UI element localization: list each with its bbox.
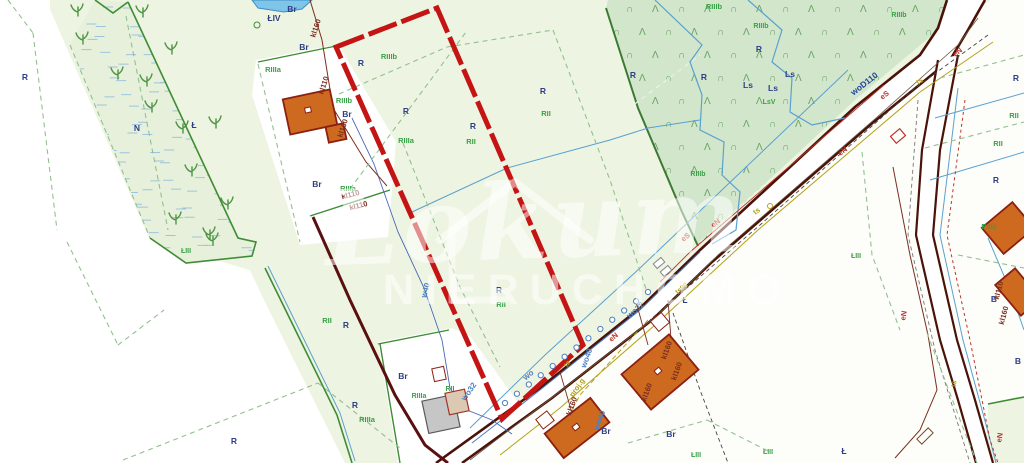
- tree-symbol: Λ: [912, 4, 919, 15]
- tree-symbol: ∩: [730, 142, 737, 153]
- map-label-r: R: [993, 175, 999, 185]
- tree-symbol: ∩: [730, 188, 737, 199]
- tree-symbol: ∩: [782, 142, 789, 153]
- tree-symbol: Λ: [704, 96, 711, 107]
- tree-symbol: Λ: [795, 119, 802, 130]
- tree-symbol: ∩: [678, 142, 685, 153]
- tree-symbol: Λ: [704, 188, 711, 199]
- tree-symbol: ∩: [717, 165, 724, 176]
- map-label-r: R: [1013, 73, 1019, 83]
- map-label-r: R: [470, 121, 476, 131]
- map-label-rii: RII: [993, 139, 1003, 148]
- map-label-riiib: RIIIb: [381, 52, 398, 61]
- tree-symbol: ∩: [730, 4, 737, 15]
- map-label-riiia: RIIIa: [412, 393, 427, 400]
- map-label-riiib: RIIIb: [981, 224, 996, 231]
- map-label-r: R: [22, 72, 28, 82]
- map-label-br: Br: [299, 42, 309, 52]
- map-label-riiia: RIIIa: [359, 415, 376, 424]
- wo-pipe-circle: [526, 382, 531, 387]
- tree-symbol: ∩: [678, 188, 685, 199]
- tree-symbol: ∩: [717, 27, 724, 38]
- tree-symbol: ∩: [834, 50, 841, 61]
- tree-symbol: ∩: [782, 50, 789, 61]
- map-label-ts: ts: [951, 380, 959, 387]
- tree-symbol: Λ: [639, 73, 646, 84]
- map-label-rii: RII: [496, 300, 506, 309]
- map-label-rii: RII: [446, 386, 455, 393]
- map-label-ł: Ł: [682, 295, 687, 305]
- map-label-rii: RII: [1009, 111, 1019, 120]
- map-label-r: R: [630, 70, 636, 80]
- wo-pipe-circle: [562, 354, 567, 359]
- tree-symbol: Λ: [808, 4, 815, 15]
- tree-symbol: Λ: [704, 142, 711, 153]
- wo-pipe-circle: [550, 363, 555, 368]
- map-label-br: Br: [312, 179, 322, 189]
- building-dot: [305, 107, 312, 113]
- tree-symbol: Λ: [795, 27, 802, 38]
- map-label-br: Br: [666, 429, 676, 439]
- map-label-r: R: [756, 44, 762, 54]
- tree-symbol: ∩: [834, 96, 841, 107]
- tree-symbol: Λ: [808, 50, 815, 61]
- map-label-łiii: ŁIII: [851, 253, 861, 260]
- tree-symbol: ∩: [730, 50, 737, 61]
- map-label-br: Br: [601, 426, 611, 436]
- map-label-lsv: LsV: [763, 99, 776, 106]
- tree-symbol: Λ: [652, 4, 659, 15]
- map-label-r: R: [352, 400, 358, 410]
- map-label-riiia: RIIIa: [265, 65, 282, 74]
- tree-symbol: Λ: [691, 27, 698, 38]
- shed-symbol: [432, 366, 446, 381]
- map-label-r: R: [343, 320, 349, 330]
- tree-symbol: Λ: [847, 27, 854, 38]
- wo-pipe-circle: [645, 289, 650, 294]
- map-label-br: Br: [398, 371, 408, 381]
- tree-symbol: ∩: [769, 27, 776, 38]
- cadastral-map-canvas[interactable]: Λ∩Λ∩Λ∩Λ∩Λ∩Λ∩Λ∩Λ∩Λ∩Λ∩Λ∩Λ∩Λ∩Λ∩Λ∩Λ∩Λ∩Λ∩Λ∩Λ∩…: [0, 0, 1024, 463]
- map-label-ł: Ł: [841, 446, 846, 456]
- wo-pipe-circle: [514, 391, 519, 396]
- map-label-ł: Ł: [191, 120, 196, 130]
- tree-symbol: ∩: [873, 27, 880, 38]
- tree-symbol: ∩: [782, 4, 789, 15]
- tree-symbol: Λ: [899, 27, 906, 38]
- tree-symbol: Λ: [795, 73, 802, 84]
- tree-symbol: ∩: [626, 50, 633, 61]
- map-label-łiii: ŁIII: [763, 449, 773, 456]
- map-label-n: N: [134, 123, 140, 133]
- tree-symbol: ∩: [665, 27, 672, 38]
- tree-symbol: ∩: [665, 73, 672, 84]
- tree-symbol: ∩: [886, 50, 893, 61]
- wo-pipe-circle: [598, 326, 603, 331]
- wo-pipe-circle: [574, 345, 579, 350]
- tree-symbol: ∩: [678, 96, 685, 107]
- cadastral-map-viewport[interactable]: Λ∩Λ∩Λ∩Λ∩Λ∩Λ∩Λ∩Λ∩Λ∩Λ∩Λ∩Λ∩Λ∩Λ∩Λ∩Λ∩Λ∩Λ∩Λ∩Λ∩…: [0, 0, 1024, 463]
- map-label-ls: Ls: [743, 80, 753, 90]
- tree-symbol: Λ: [639, 27, 646, 38]
- tree-symbol: Λ: [743, 27, 750, 38]
- map-label-rii: RII: [541, 109, 551, 118]
- tree-symbol: ∩: [717, 73, 724, 84]
- tree-symbol: ∩: [730, 96, 737, 107]
- map-label-łiii: ŁIII: [181, 248, 191, 255]
- wo-pipe-circle: [586, 336, 591, 341]
- map-label-riiib: RIIIb: [891, 12, 906, 19]
- map-label-r: R: [701, 72, 707, 82]
- map-label-riiib: RIIIb: [690, 171, 705, 178]
- map-label-rii: RII: [466, 137, 476, 146]
- map-label-r: R: [496, 285, 502, 295]
- tree-symbol: ∩: [626, 4, 633, 15]
- tree-symbol: Λ: [847, 73, 854, 84]
- map-label-riiib: RIIIb: [753, 23, 768, 30]
- map-label-r: R: [540, 86, 546, 96]
- map-label-br: Br: [342, 109, 352, 119]
- tree-symbol: ∩: [678, 4, 685, 15]
- tree-symbol: ∩: [782, 96, 789, 107]
- map-label-r: R: [231, 436, 237, 446]
- tree-symbol: ∩: [678, 50, 685, 61]
- map-label-en: eN: [994, 432, 1005, 443]
- wo-pipe-circle: [538, 373, 543, 378]
- map-label-riiia: RIIIa: [398, 136, 415, 145]
- tree-symbol: ∩: [821, 73, 828, 84]
- map-label-rii: RII: [322, 316, 332, 325]
- wo-pipe-circle: [610, 317, 615, 322]
- tree-symbol: Λ: [743, 119, 750, 130]
- map-label-r: R: [358, 58, 364, 68]
- map-label-riiib: RIIIb: [706, 2, 723, 11]
- map-label-r: R: [403, 106, 409, 116]
- map-label-łiii: ŁIII: [691, 452, 701, 459]
- wo-pipe-circle: [502, 400, 507, 405]
- map-label-riiib: RIIIb: [336, 96, 353, 105]
- map-label-br: Br: [287, 4, 297, 14]
- map-label-b: B: [1015, 356, 1021, 366]
- tree-symbol: ∩: [769, 119, 776, 130]
- tree-symbol: ∩: [821, 27, 828, 38]
- map-label-en: eN: [898, 310, 909, 321]
- tree-symbol: ∩: [717, 119, 724, 130]
- tree-symbol: Λ: [860, 4, 867, 15]
- tree-symbol: Λ: [704, 50, 711, 61]
- map-label-ls: Ls: [785, 69, 795, 79]
- tree-symbol: ∩: [834, 4, 841, 15]
- tree-symbol: Λ: [652, 96, 659, 107]
- map-label-łiv: ŁIV: [267, 13, 281, 23]
- tree-symbol: Λ: [652, 50, 659, 61]
- tree-symbol: Λ: [860, 50, 867, 61]
- map-label-ls: Ls: [768, 83, 778, 93]
